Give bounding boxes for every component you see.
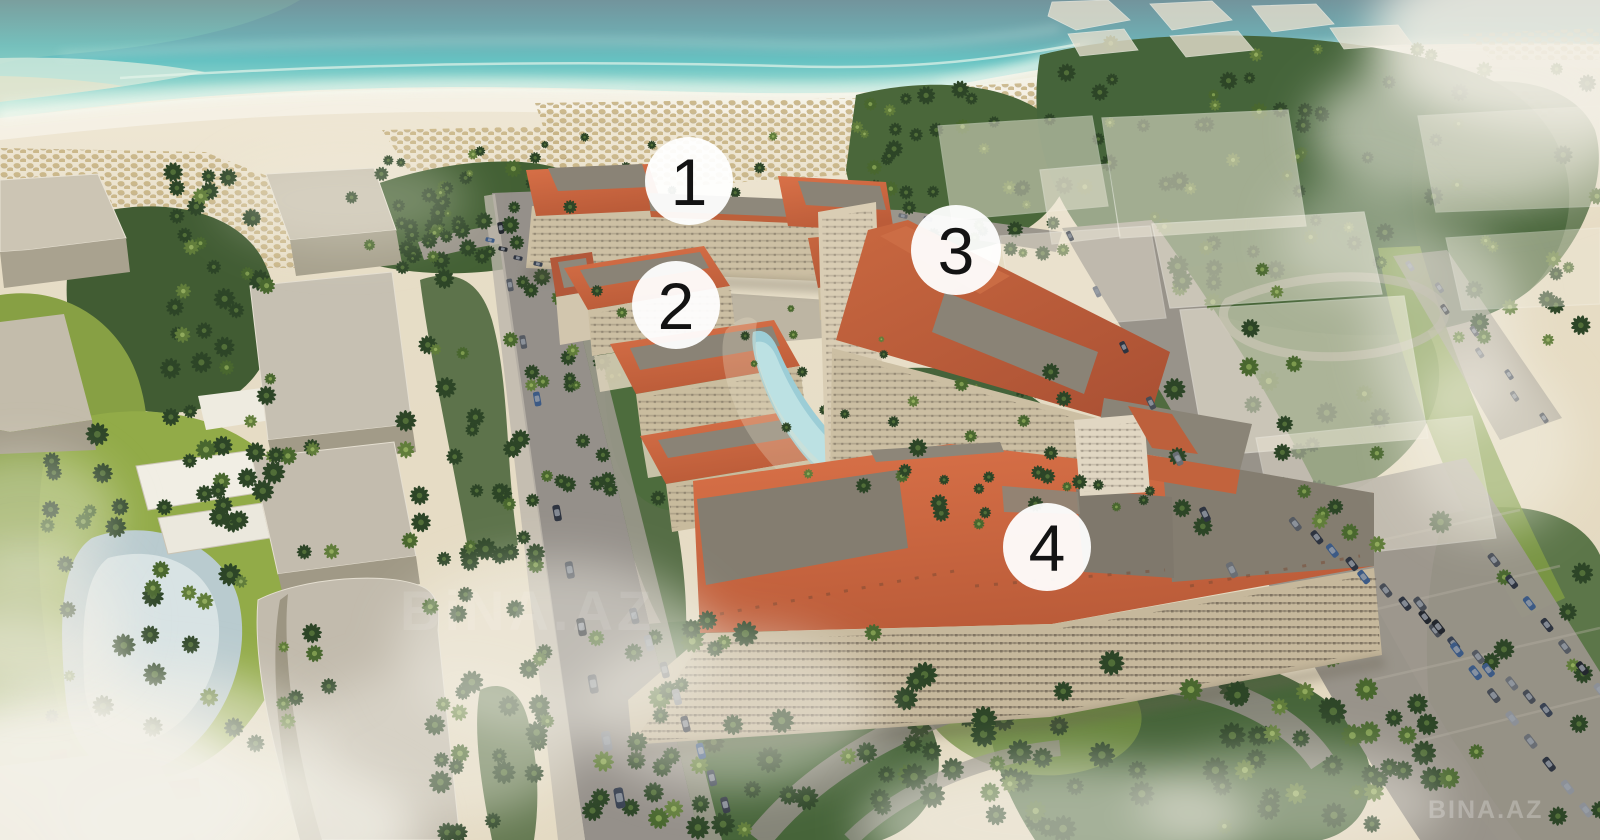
svg-text:4: 4 (1029, 511, 1066, 585)
svg-text:BINA.AZ: BINA.AZ (1428, 796, 1543, 824)
svg-text:1: 1 (671, 145, 708, 219)
svg-text:3: 3 (938, 214, 975, 288)
svg-text:2: 2 (658, 269, 695, 343)
svg-text:BiNA.AZ: BiNA.AZ (400, 579, 655, 642)
